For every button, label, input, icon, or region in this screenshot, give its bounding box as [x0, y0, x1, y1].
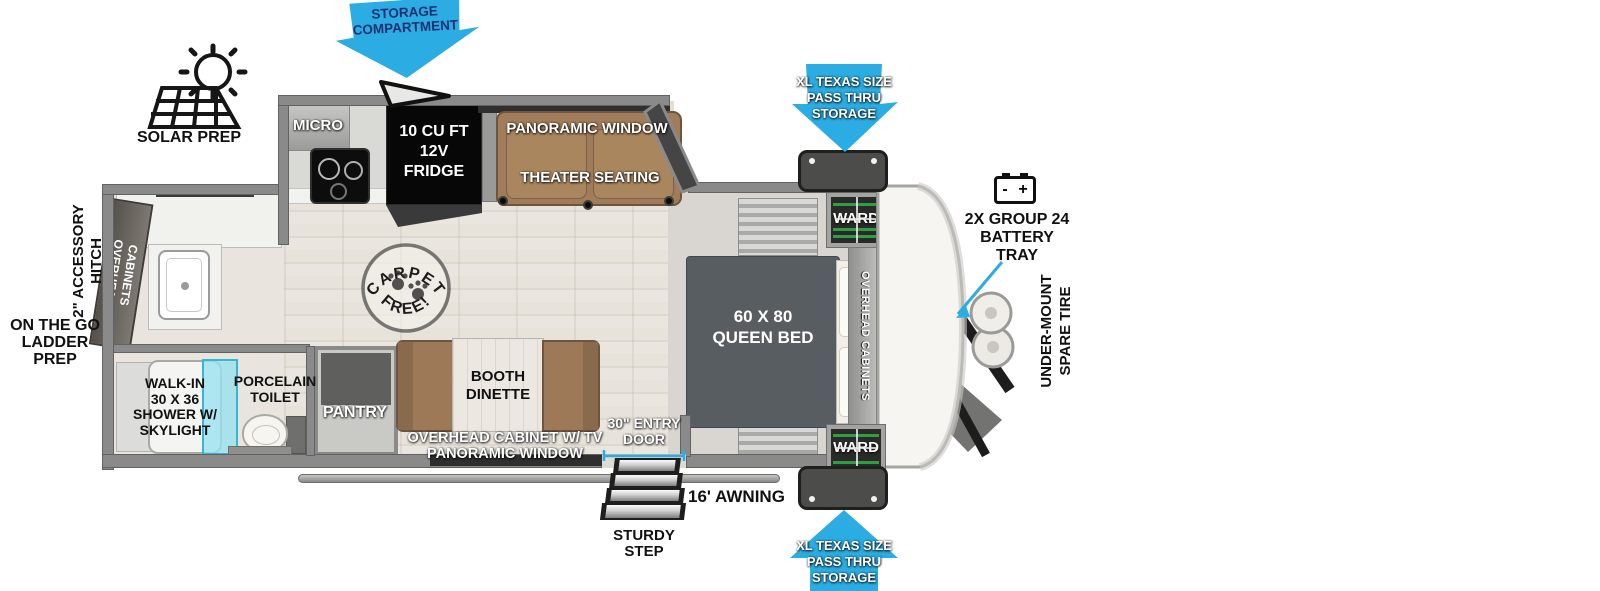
sofa-foot-center: [583, 200, 593, 210]
fridge-label: 10 CU FT 12V FRIDGE: [386, 122, 482, 182]
pass-thru-top-callout: XL TEXAS SIZE PASS THRU STORAGE: [790, 74, 898, 122]
shower-label: WALK-IN 30 X 36 SHOWER W/ SKYLIGHT: [114, 376, 236, 438]
awning-bar: [298, 474, 780, 483]
sofa-foot-right: [664, 196, 674, 206]
sofa-cushion-right: [593, 129, 674, 199]
ladder-prep-label: ON THE GO LADDER PREP: [0, 317, 110, 368]
latch-dot: [809, 158, 815, 164]
dinette-bench-right: [542, 340, 600, 432]
tongue-jack-wheel-front: [971, 293, 1011, 333]
tongue-a-frame: [882, 285, 1013, 455]
battery-pointer-line: [956, 262, 1002, 318]
entry-step-4: [600, 503, 686, 520]
latch-dot: [871, 496, 877, 502]
entry-step-1: [613, 458, 681, 473]
bedroom-overhead-cabinets-label: OVERHEAD CABINETS: [859, 271, 871, 401]
burner-3: [330, 183, 347, 200]
burner-2: [344, 161, 363, 180]
accessory-hitch-label: 2" ACCESSORY HITCH: [70, 191, 106, 331]
sofa-foot-left: [498, 196, 508, 206]
battery-terminal-left: [1002, 173, 1010, 177]
theater-seating-label: THEATER SEATING: [500, 170, 680, 187]
pass-thru-storage-box-bottom: [798, 466, 888, 510]
battery-icon: - +: [994, 176, 1036, 204]
dinette-bench-left: [396, 340, 454, 432]
bench-backrest-left: [398, 342, 413, 430]
solar-prep-icon: [150, 46, 245, 127]
bathroom-sink: [158, 250, 210, 320]
battery-terminal-right: [1020, 173, 1028, 177]
entry-step-3: [605, 488, 685, 503]
pass-thru-bottom-callout: XL TEXAS SIZE PASS THRU STORAGE: [790, 538, 898, 586]
pass-thru-storage-box-top: [798, 150, 888, 192]
sink-faucet: [181, 282, 189, 290]
fridge-sofa-divider-wall: [482, 102, 497, 202]
rv-floorplan-diagram: OVERHEAD CABINETS: [0, 0, 1600, 591]
battery-minus-symbol: -: [1002, 181, 1007, 199]
battery-tray-label: 2X GROUP 24 BATTERY TRAY: [948, 211, 1086, 265]
bathroom-mid-wall: [108, 344, 310, 353]
pantry-upper-shelf: [321, 353, 391, 405]
overhead-cabinet-tv-label: OVERHEAD CABINET W/ TV PANORAMIC WINDOW: [398, 430, 612, 462]
panoramic-window-top-label: PANORAMIC WINDOW: [492, 121, 682, 138]
toilet-label: PORCELAIN TOILET: [222, 373, 328, 405]
top-wall-main: [278, 95, 670, 106]
storage-compartment-callout: STORAGE COMPARTMENT: [337, 2, 472, 39]
spare-tire-label: UNDER-MOUNT SPARE TIRE: [1037, 263, 1075, 399]
booth-dinette-label: BOOTH DINETTE: [452, 368, 544, 404]
pantry-label: PANTRY: [314, 404, 396, 422]
sun-icon: [196, 55, 230, 89]
latch-dot: [809, 496, 815, 502]
entry-step-2: [609, 473, 683, 488]
micro-label: MICRO: [286, 118, 350, 135]
cooktop: [310, 148, 370, 204]
burner-1: [318, 158, 340, 180]
sturdy-step-label: STURDY STEP: [600, 528, 688, 560]
queen-bed-label: 60 X 80 QUEEN BED: [686, 306, 840, 348]
latch-dot: [871, 158, 877, 164]
battery-plus-symbol: +: [1018, 181, 1027, 199]
bed-platform-step-bottom: [738, 426, 818, 456]
solar-prep-label: SOLAR PREP: [130, 129, 248, 147]
bed-platform-step-top: [738, 198, 818, 256]
awning-label: 16' AWNING: [688, 487, 800, 506]
sofa-cushion-left: [506, 129, 587, 199]
tongue-jack-wheel-rear: [973, 327, 1013, 367]
top-wall-rear-section: [102, 184, 288, 195]
toilet-seat-line: [252, 425, 280, 445]
